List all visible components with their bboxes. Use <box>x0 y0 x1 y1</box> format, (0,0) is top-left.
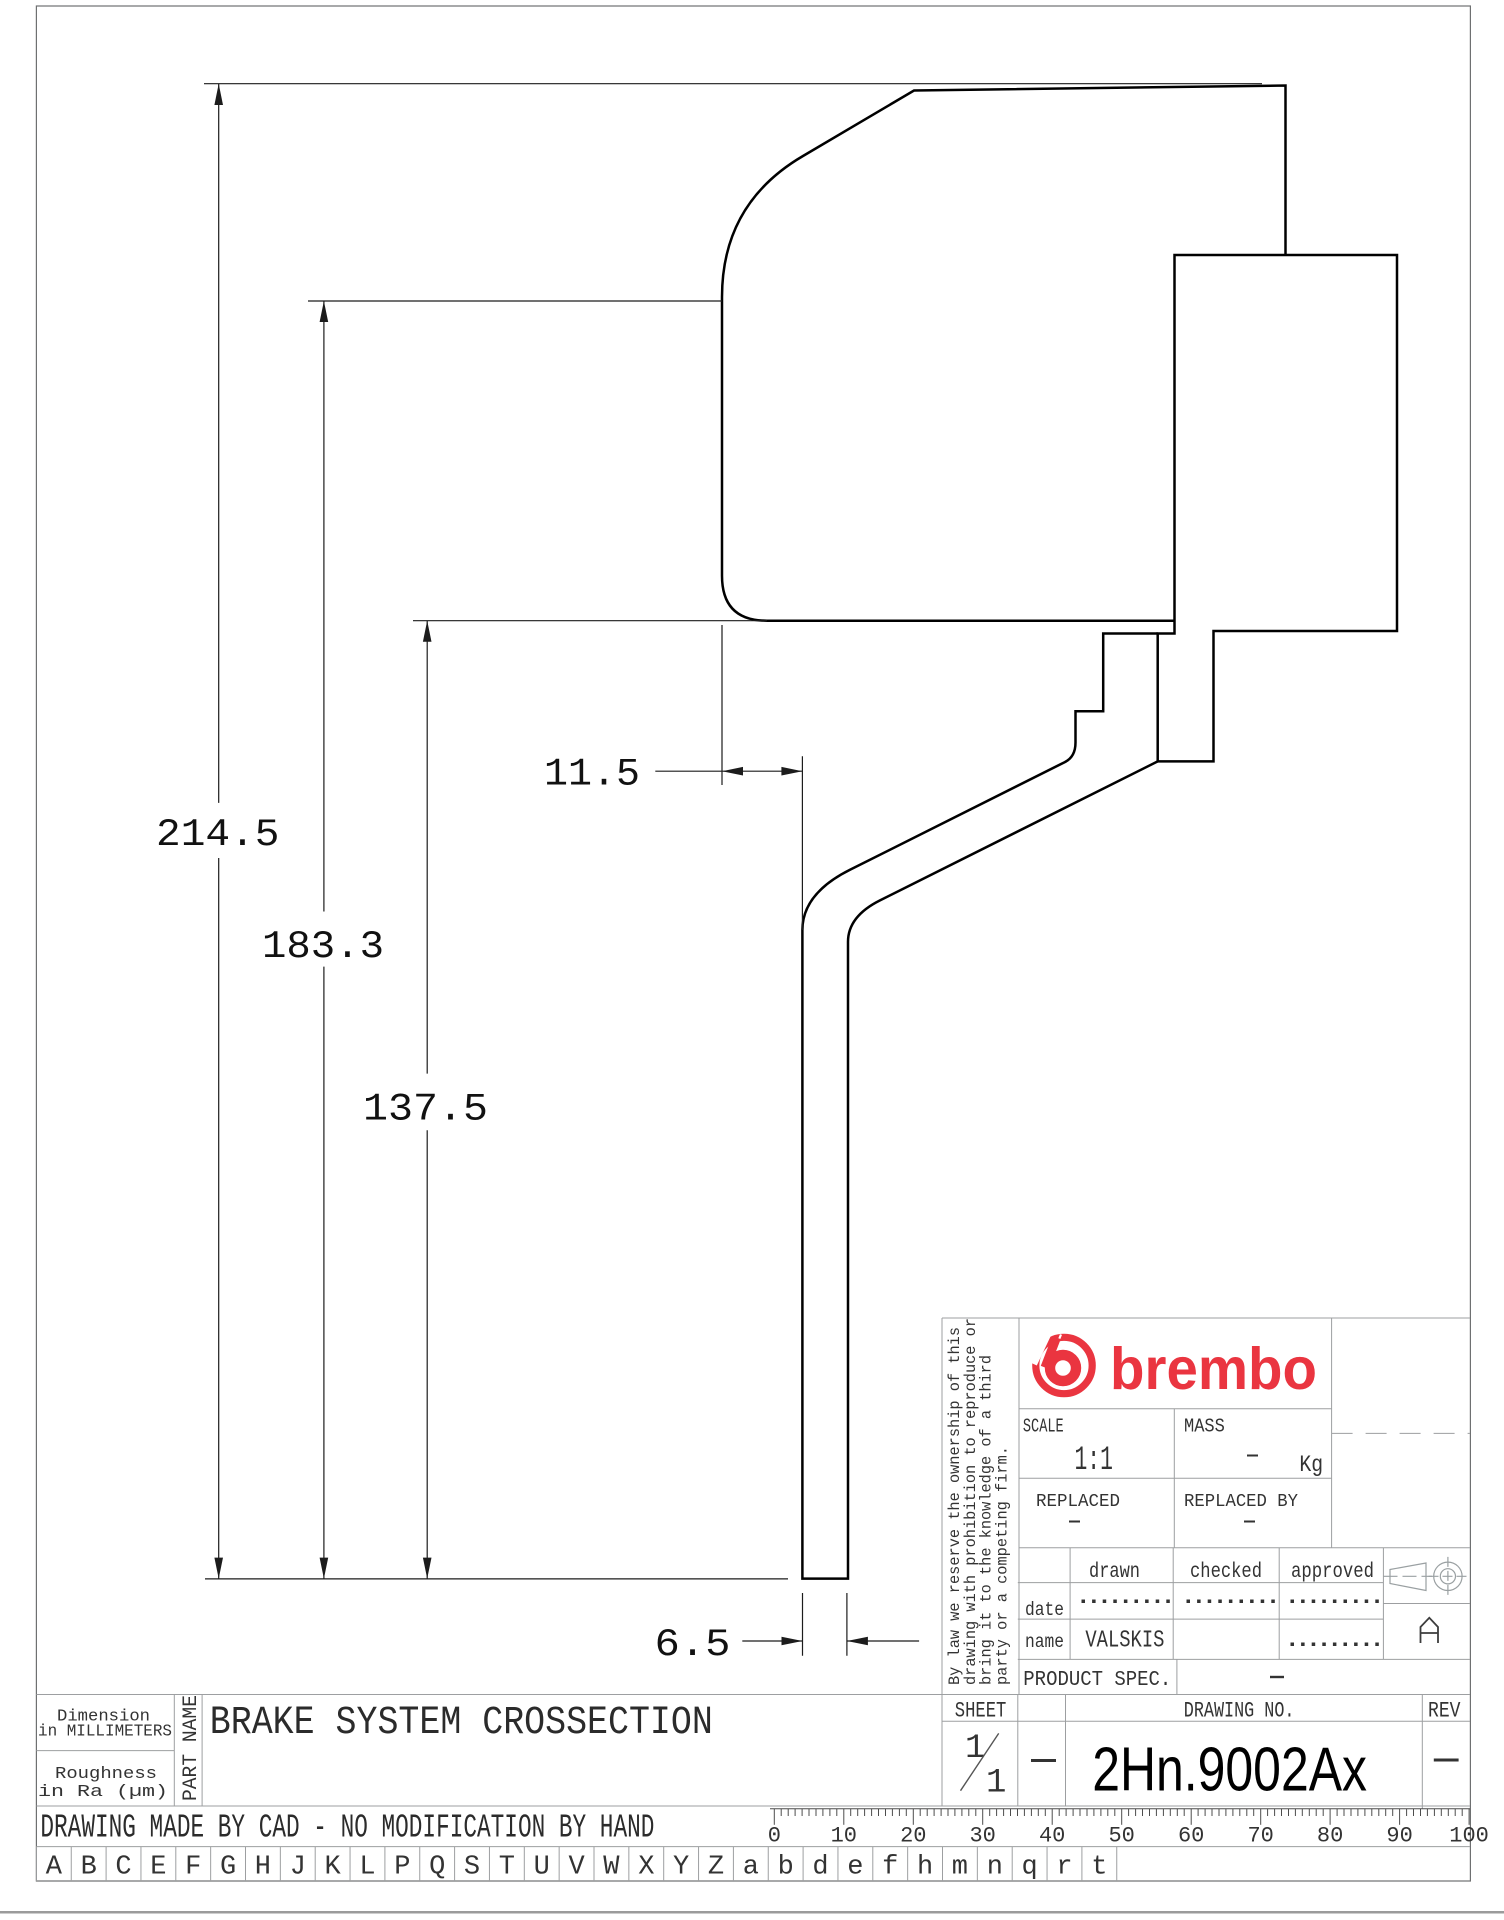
svg-text:90: 90 <box>1386 1824 1412 1849</box>
svg-text:b: b <box>778 1853 794 1883</box>
svg-text:10: 10 <box>831 1824 857 1849</box>
svg-text:A: A <box>46 1853 63 1883</box>
svg-text:1:1: 1:1 <box>1075 1442 1113 1480</box>
svg-text:100: 100 <box>1449 1824 1489 1849</box>
svg-text:G: G <box>220 1853 236 1883</box>
svg-text:1: 1 <box>986 1765 1006 1803</box>
svg-text:H: H <box>255 1853 271 1883</box>
svg-text:REPLACED: REPLACED <box>1036 1491 1120 1512</box>
svg-text:6.5: 6.5 <box>655 1623 731 1667</box>
svg-text:MASS: MASS <box>1184 1415 1225 1437</box>
svg-text:t: t <box>1091 1853 1107 1883</box>
svg-text:REPLACED BY: REPLACED BY <box>1184 1491 1298 1512</box>
svg-text:60: 60 <box>1178 1824 1204 1849</box>
svg-text:70: 70 <box>1247 1824 1273 1849</box>
svg-text:approved: approved <box>1291 1561 1374 1584</box>
svg-text:d: d <box>812 1853 828 1883</box>
svg-text:PART NAME: PART NAME <box>180 1695 203 1801</box>
svg-text:f: f <box>882 1853 898 1883</box>
svg-text:F: F <box>185 1853 201 1883</box>
svg-text:checked: checked <box>1190 1561 1262 1584</box>
svg-text:date: date <box>1025 1599 1064 1621</box>
svg-text:P: P <box>394 1853 410 1883</box>
svg-text:0: 0 <box>768 1824 781 1849</box>
svg-text:L: L <box>359 1853 375 1883</box>
svg-text:h: h <box>917 1853 933 1883</box>
svg-text:VALSKIS: VALSKIS <box>1085 1628 1164 1655</box>
svg-text:SCALE: SCALE <box>1023 1415 1064 1437</box>
svg-text:REV: REV <box>1428 1698 1461 1723</box>
svg-text:a: a <box>743 1853 759 1883</box>
svg-text:PRODUCT SPEC.: PRODUCT SPEC. <box>1023 1668 1171 1692</box>
svg-text:11.5: 11.5 <box>544 753 640 797</box>
svg-text:r: r <box>1056 1853 1072 1883</box>
svg-text:in MILLIMETERS: in MILLIMETERS <box>38 1723 172 1742</box>
svg-text:Z: Z <box>708 1853 724 1883</box>
svg-text:n: n <box>987 1853 1003 1883</box>
svg-text:m: m <box>952 1853 968 1883</box>
svg-text:V: V <box>568 1853 585 1883</box>
svg-text:name: name <box>1025 1631 1064 1653</box>
svg-text:drawn: drawn <box>1089 1561 1140 1584</box>
svg-text:30: 30 <box>969 1824 995 1849</box>
svg-text:in Ra (µm): in Ra (µm) <box>38 1783 168 1802</box>
svg-text:J: J <box>290 1853 306 1883</box>
svg-text:DRAWING MADE BY CAD - NO MODIF: DRAWING MADE BY CAD - NO MODIFICATION BY… <box>40 1810 654 1847</box>
svg-text:214.5: 214.5 <box>156 813 280 857</box>
svg-text:20: 20 <box>900 1824 926 1849</box>
svg-text:T: T <box>499 1853 515 1883</box>
svg-text:C: C <box>115 1853 131 1883</box>
svg-text:S: S <box>464 1853 480 1883</box>
svg-text:X: X <box>638 1853 654 1883</box>
svg-text:Roughness: Roughness <box>55 1765 157 1784</box>
svg-text:137.5: 137.5 <box>363 1088 488 1132</box>
svg-text:e: e <box>847 1853 863 1883</box>
svg-text:SHEET: SHEET <box>955 1698 1007 1723</box>
svg-text:40: 40 <box>1039 1824 1065 1849</box>
svg-text:K: K <box>324 1853 341 1883</box>
svg-text:U: U <box>534 1853 550 1883</box>
svg-text:q: q <box>1021 1853 1037 1883</box>
svg-text:Y: Y <box>673 1853 689 1883</box>
svg-text:50: 50 <box>1108 1824 1134 1849</box>
svg-text:2Hn.9002Ax: 2Hn.9002Ax <box>1092 1736 1367 1805</box>
svg-text:DRAWING NO.: DRAWING NO. <box>1184 1698 1295 1723</box>
svg-text:1: 1 <box>965 1730 985 1768</box>
svg-text:Kg: Kg <box>1299 1452 1323 1478</box>
svg-text:W: W <box>603 1853 620 1883</box>
svg-text:brembo: brembo <box>1110 1336 1317 1402</box>
svg-text:80: 80 <box>1317 1824 1343 1849</box>
svg-text:183.3: 183.3 <box>262 925 384 969</box>
svg-text:E: E <box>150 1853 166 1883</box>
svg-text:B: B <box>81 1853 97 1883</box>
svg-text:Q: Q <box>429 1853 445 1883</box>
svg-text:party or a competing firm.: party or a competing firm. <box>993 1446 1011 1685</box>
svg-text:BRAKE SYSTEM CROSSECTION: BRAKE SYSTEM CROSSECTION <box>210 1701 713 1746</box>
